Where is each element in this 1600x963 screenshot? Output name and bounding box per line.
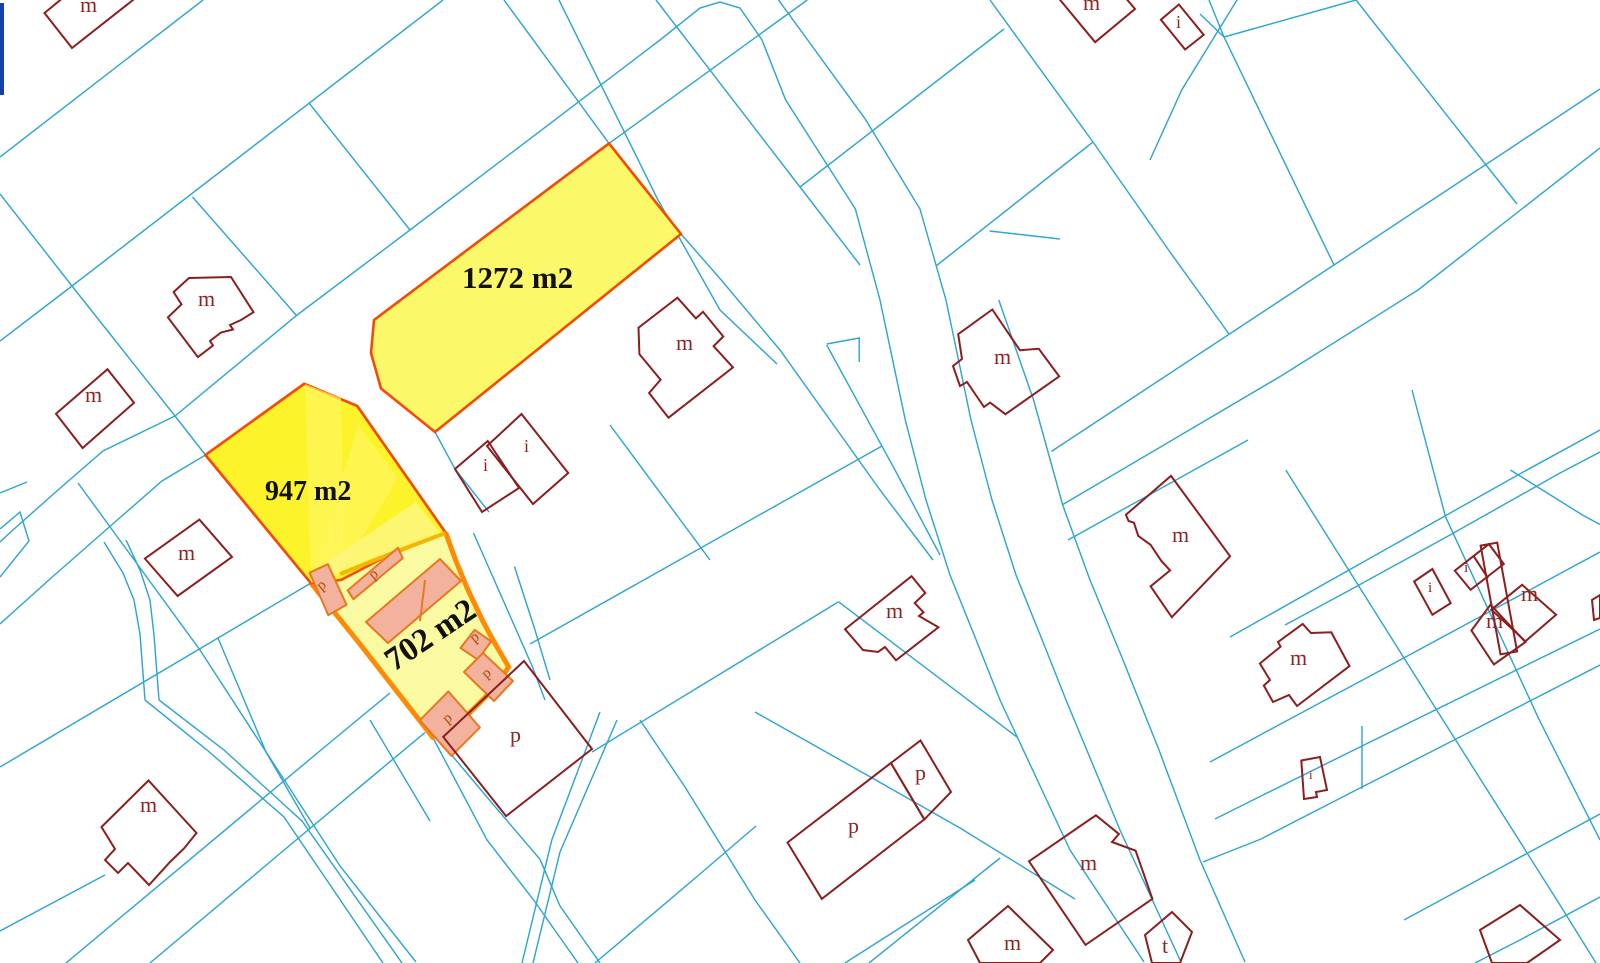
svg-text:t: t	[1162, 933, 1168, 958]
svg-text:i: i	[1309, 767, 1313, 782]
svg-text:m: m	[178, 540, 195, 565]
svg-text:m: m	[1083, 0, 1100, 15]
svg-text:p: p	[915, 760, 926, 785]
svg-text:1272 m2: 1272 m2	[462, 260, 573, 295]
svg-text:i: i	[1464, 560, 1468, 576]
svg-text:m: m	[1172, 522, 1189, 547]
svg-text:m: m	[198, 286, 215, 311]
svg-text:p: p	[510, 722, 521, 747]
svg-text:947 m2: 947 m2	[265, 476, 351, 507]
svg-text:m: m	[1521, 581, 1538, 606]
svg-text:m: m	[676, 330, 693, 355]
svg-text:m: m	[1004, 930, 1021, 955]
svg-text:m: m	[886, 598, 903, 623]
svg-text:p: p	[848, 813, 859, 838]
svg-text:m: m	[80, 0, 97, 17]
svg-text:m: m	[994, 344, 1011, 369]
svg-text:m: m	[1080, 850, 1097, 875]
svg-text:i: i	[1428, 580, 1432, 596]
svg-text:m: m	[1290, 645, 1307, 670]
svg-text:m: m	[140, 792, 157, 817]
svg-text:i: i	[1176, 12, 1181, 32]
svg-text:m: m	[85, 382, 102, 407]
svg-text:m: m	[1486, 608, 1503, 633]
svg-text:i: i	[524, 436, 529, 456]
svg-text:i: i	[483, 455, 488, 475]
